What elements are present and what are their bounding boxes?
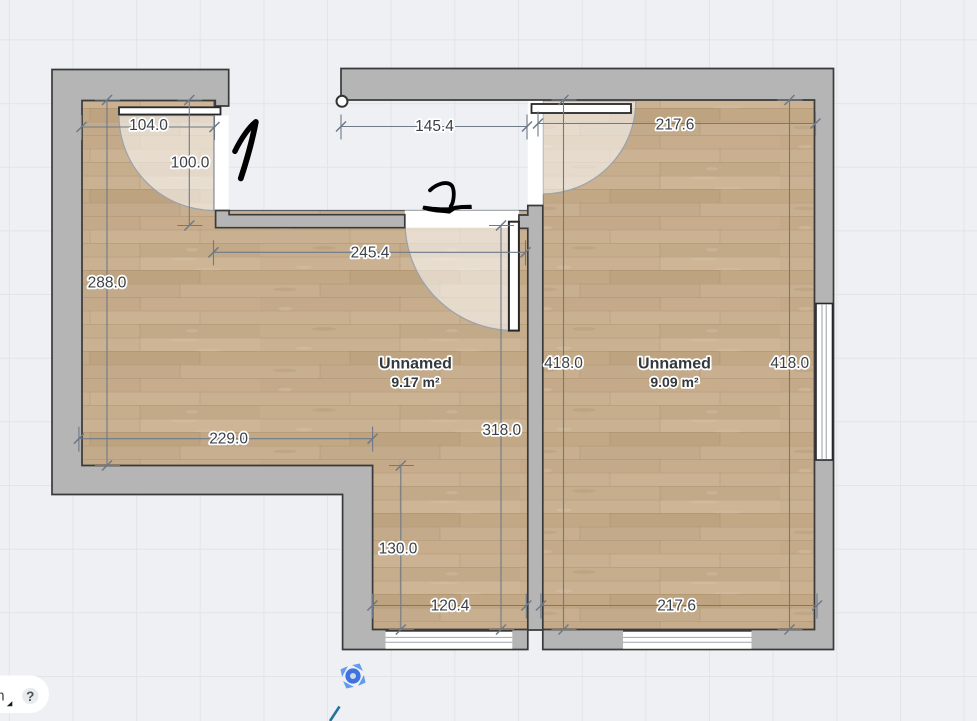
svg-text:318.0: 318.0 (482, 422, 521, 439)
svg-text:104.0: 104.0 (129, 117, 168, 134)
svg-text:n: n (0, 689, 5, 705)
svg-text:130.0: 130.0 (379, 541, 418, 558)
svg-text:229.0: 229.0 (209, 431, 248, 448)
svg-text:217.6: 217.6 (656, 117, 695, 134)
svg-text:100.0: 100.0 (171, 154, 210, 171)
svg-text:418.0: 418.0 (770, 355, 809, 372)
svg-text:288.0: 288.0 (88, 274, 127, 291)
svg-text:245.4: 245.4 (351, 244, 390, 261)
svg-text:9.09 m²: 9.09 m² (650, 374, 699, 390)
svg-text:418.0: 418.0 (544, 355, 583, 372)
svg-text:?: ? (26, 689, 34, 704)
svg-text:Unnamed: Unnamed (638, 356, 711, 373)
svg-text:120.4: 120.4 (431, 597, 470, 614)
svg-text:145.4: 145.4 (415, 118, 454, 135)
svg-text:217.6: 217.6 (657, 598, 696, 615)
svg-text:Unnamed: Unnamed (379, 356, 452, 373)
svg-text:9.17 m²: 9.17 m² (391, 374, 440, 390)
